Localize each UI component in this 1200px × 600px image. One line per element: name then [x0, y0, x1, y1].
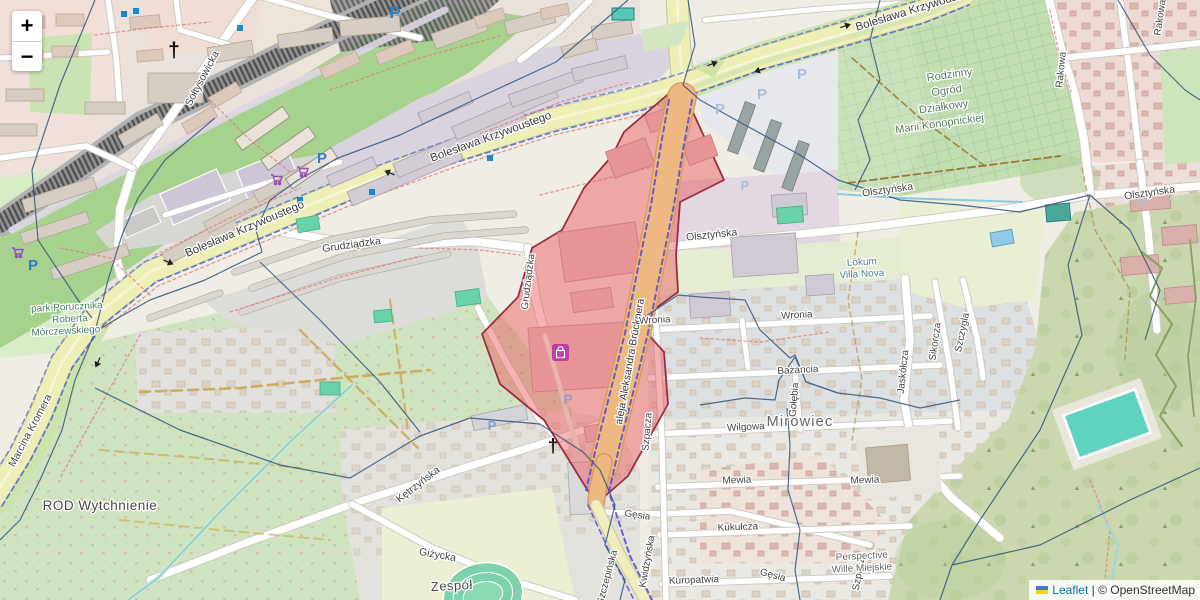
svg-text:P: P — [488, 418, 497, 433]
svg-text:Kukułcza: Kukułcza — [717, 521, 758, 533]
svg-text:Kuropatwia: Kuropatwia — [669, 574, 720, 587]
svg-text:ROD Wytchnienie: ROD Wytchnienie — [43, 498, 158, 513]
svg-text:P: P — [797, 66, 807, 83]
svg-text:Lokum: Lokum — [847, 256, 878, 269]
svg-text:P: P — [757, 86, 767, 103]
svg-text:Mewia: Mewia — [850, 474, 880, 486]
svg-text:P: P — [317, 150, 327, 167]
svg-text:Bażancia: Bażancia — [777, 364, 819, 377]
svg-text:Zespół: Zespół — [430, 577, 473, 594]
svg-text:P: P — [715, 101, 725, 118]
svg-text:Roberta: Roberta — [52, 313, 89, 326]
svg-text:P: P — [563, 391, 572, 407]
svg-text:Wilgowa: Wilgowa — [727, 421, 766, 434]
svg-text:P: P — [741, 178, 750, 193]
svg-text:Mirowiec: Mirowiec — [767, 414, 834, 430]
svg-text:Mewia: Mewia — [722, 474, 752, 486]
svg-text:Wronia: Wronia — [781, 309, 813, 322]
svg-text:†: † — [168, 39, 180, 62]
svg-text:Wronia: Wronia — [639, 314, 671, 327]
svg-text:†: † — [548, 436, 559, 457]
svg-text:P: P — [28, 257, 38, 274]
svg-text:P: P — [389, 3, 400, 22]
